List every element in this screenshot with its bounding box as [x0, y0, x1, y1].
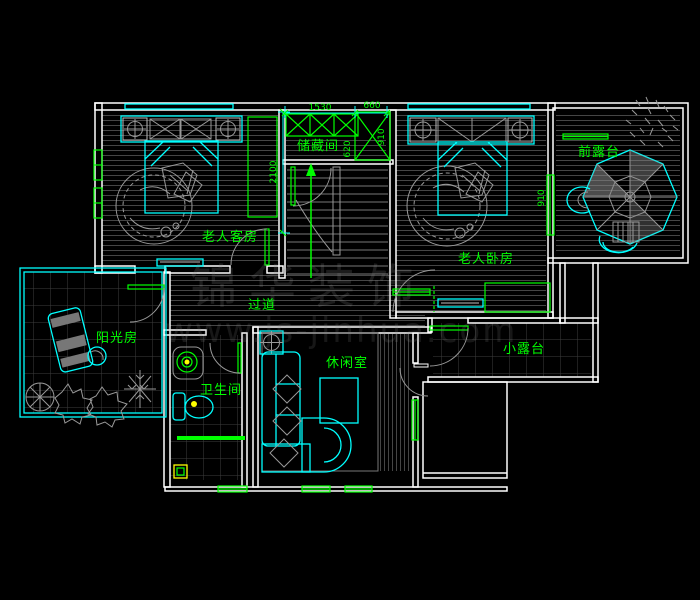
dim-stair-run: 2100: [269, 160, 279, 183]
cad-floorplan-canvas[interactable]: 1530 660 2100 620 910 910 锦华装饰 www.js-ji…: [0, 0, 700, 600]
room-label-sunroom: 阳光房: [96, 330, 138, 346]
room-label-lounge: 休闲室: [326, 355, 368, 371]
room-label-corridor: 过道: [248, 298, 276, 313]
floorplan-drawing: 1530 660 2100 620 910 910 锦华装饰 www.js-ji…: [0, 0, 700, 600]
room-label-small-terrace: 小露台: [503, 342, 545, 357]
room-label-bathroom: 卫生间: [200, 383, 242, 398]
watermark-brand: 锦华装饰: [190, 260, 426, 315]
parasol-table-icon: [583, 150, 677, 244]
dim-storage-depth: 620: [343, 140, 353, 157]
room-label-master-bedroom: 老人卧房: [458, 251, 514, 267]
threshold-strip: [177, 436, 245, 440]
room-label-front-terrace: 前露台: [578, 144, 620, 160]
room-label-guest-bedroom: 老人客房: [202, 229, 258, 245]
watermark-url: www.js-jinhua.com: [165, 311, 517, 351]
dim-storage-side: 660: [363, 101, 380, 111]
dim-storage-width: 1530: [309, 103, 332, 113]
dim-closet-height: 910: [377, 128, 387, 145]
dim-terrace-window: 910: [537, 189, 547, 206]
room-label-storage: 储藏间: [297, 139, 339, 154]
